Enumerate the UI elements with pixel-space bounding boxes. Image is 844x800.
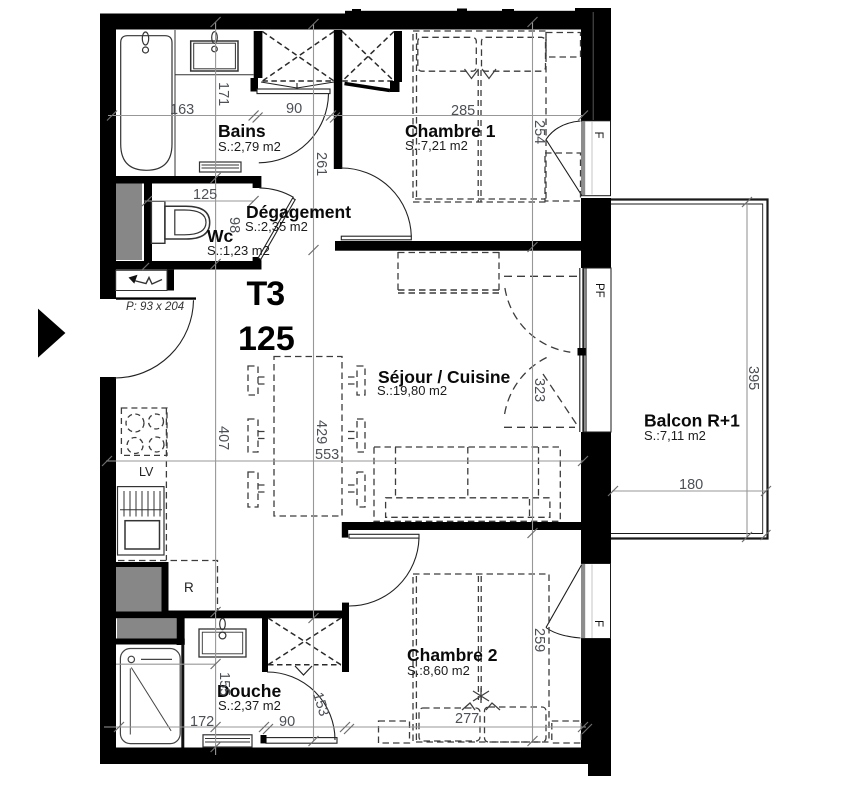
svg-text:90: 90	[279, 714, 295, 730]
svg-text:429: 429	[313, 420, 329, 444]
svg-text:180: 180	[679, 477, 703, 493]
svg-text:S.:8,60 m2: S.:8,60 m2	[407, 663, 470, 678]
svg-text:F: F	[592, 132, 604, 139]
svg-text:254: 254	[531, 120, 547, 144]
svg-text:LV: LV	[139, 465, 154, 479]
svg-text:P: 93 x 204: P: 93 x 204	[126, 301, 184, 313]
svg-text:261: 261	[313, 152, 329, 176]
svg-text:172: 172	[190, 714, 214, 730]
svg-text:S.:2,37 m2: S.:2,37 m2	[218, 698, 281, 713]
svg-text:S.:2,35 m2: S.:2,35 m2	[245, 219, 308, 234]
svg-text:407: 407	[215, 426, 231, 450]
svg-text:T3: T3	[247, 275, 285, 313]
svg-text:R: R	[184, 580, 194, 595]
svg-text:S.:7,21 m2: S.:7,21 m2	[405, 138, 468, 153]
svg-text:90: 90	[286, 101, 302, 117]
svg-text:395: 395	[745, 366, 761, 390]
svg-text:PF: PF	[593, 283, 605, 298]
svg-text:285: 285	[451, 103, 475, 119]
svg-text:553: 553	[315, 447, 339, 463]
svg-text:Chambre 2: Chambre 2	[407, 645, 498, 665]
svg-text:S.:2,79 m2: S.:2,79 m2	[218, 139, 281, 154]
svg-text:S.:19,80 m2: S.:19,80 m2	[377, 383, 447, 398]
svg-text:171: 171	[215, 82, 231, 106]
svg-text:277: 277	[455, 711, 479, 727]
svg-text:155: 155	[216, 672, 232, 696]
svg-text:S.:7,11 m2: S.:7,11 m2	[644, 428, 706, 443]
svg-text:259: 259	[531, 628, 547, 652]
svg-text:323: 323	[531, 378, 547, 402]
svg-text:163: 163	[170, 102, 194, 118]
svg-text:S.:1,23 m2: S.:1,23 m2	[207, 243, 270, 258]
svg-text:F: F	[592, 620, 604, 627]
svg-text:125: 125	[193, 187, 217, 203]
svg-text:98: 98	[226, 217, 242, 233]
svg-text:Bains: Bains	[218, 121, 266, 141]
svg-text:125: 125	[238, 320, 295, 358]
